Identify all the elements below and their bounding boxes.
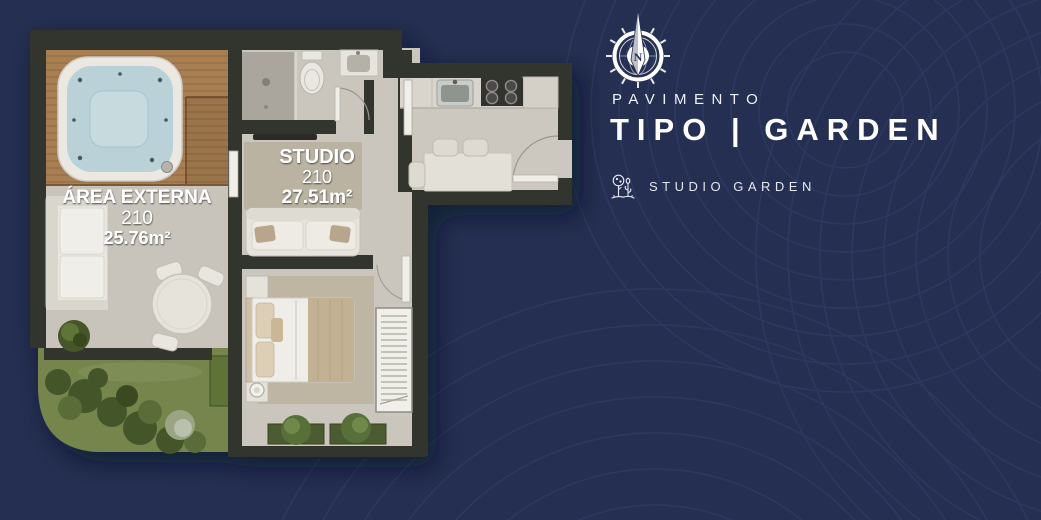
shower-head xyxy=(262,78,270,86)
kitchen-door xyxy=(404,80,412,135)
jacuzzi xyxy=(58,57,182,181)
svg-text:210: 210 xyxy=(121,208,153,229)
terrace-door xyxy=(229,151,238,197)
kitchen-cabinet xyxy=(523,77,558,108)
compass-n-letter: N xyxy=(634,50,643,64)
panel-kicker: PAVIMENTO xyxy=(612,91,765,108)
planter-box xyxy=(210,356,230,406)
bathroom-door xyxy=(335,87,340,121)
svg-text:STUDIO: STUDIO xyxy=(279,146,355,168)
nightstand xyxy=(246,276,268,300)
terrace-sofa xyxy=(46,196,108,310)
jacuzzi-control xyxy=(162,162,173,173)
panel-title: TIPO | GARDEN xyxy=(610,112,947,148)
unit-type-badge: STUDIO GARDEN xyxy=(610,171,816,201)
compass-north-icon: N xyxy=(598,4,678,96)
garden xyxy=(38,348,230,454)
toilet xyxy=(300,62,324,94)
potted-plant xyxy=(58,320,90,352)
badge-label: STUDIO GARDEN xyxy=(649,179,816,194)
partition-door xyxy=(402,256,410,302)
wardrobe xyxy=(376,308,412,412)
dining-table xyxy=(424,153,512,191)
entry-door xyxy=(513,175,558,182)
page: ÁREA EXTERNA 210 25.76m² STUDIO 210 27.5… xyxy=(0,0,1041,520)
svg-text:210: 210 xyxy=(302,167,332,187)
studio-sofa xyxy=(246,208,360,256)
stove xyxy=(481,78,523,106)
svg-text:ÁREA EXTERNA: ÁREA EXTERNA xyxy=(62,186,211,208)
floor-plan: ÁREA EXTERNA 210 25.76m² STUDIO 210 27.5… xyxy=(0,0,600,520)
tv xyxy=(253,134,317,140)
shower xyxy=(242,52,294,120)
info-panel: N PAVIMENTO TIPO | GARDEN xyxy=(596,0,1041,520)
bed xyxy=(246,298,354,382)
garden-icon xyxy=(610,171,636,201)
svg-text:27.51m²: 27.51m² xyxy=(282,187,353,208)
svg-text:25.76m²: 25.76m² xyxy=(103,228,170,248)
